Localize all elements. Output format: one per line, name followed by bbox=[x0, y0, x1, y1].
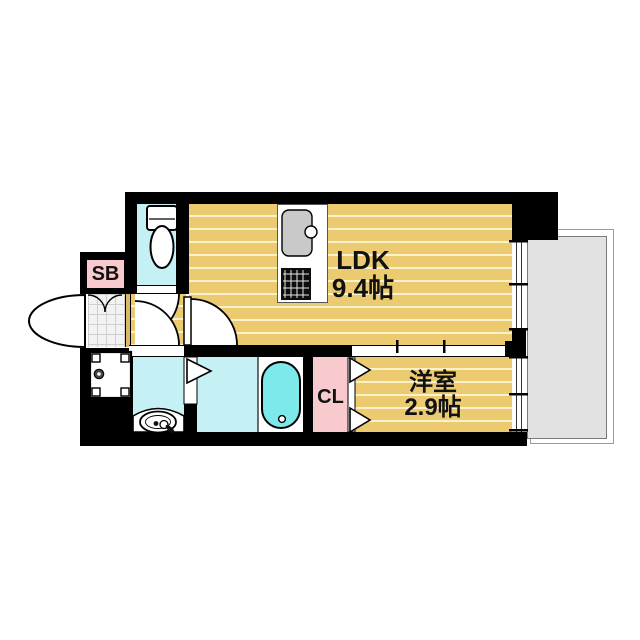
floorplan-canvas: SB bbox=[0, 0, 640, 640]
wall-sliding-stub bbox=[505, 341, 526, 357]
washroom-door-opening bbox=[129, 345, 184, 357]
wall-bottom bbox=[80, 432, 527, 446]
entrance-tiles bbox=[88, 294, 125, 347]
wall-bathdoor-lower bbox=[184, 404, 197, 432]
closet-label: CL bbox=[313, 387, 348, 408]
ldk-label-block: LDK 9.4帖 bbox=[303, 247, 423, 302]
wall-right-upper bbox=[512, 204, 526, 242]
bathtub-platform bbox=[258, 357, 303, 432]
toilet-door-lintel bbox=[137, 285, 176, 294]
sliding-door-icon bbox=[352, 345, 505, 357]
wall-hall-bottom bbox=[184, 345, 352, 357]
western-room-label-block: 洋室 2.9帖 bbox=[366, 370, 500, 421]
balcony bbox=[527, 236, 607, 439]
wall-tub-closet bbox=[303, 357, 313, 432]
ldk-size: 9.4帖 bbox=[303, 275, 423, 303]
wall-toilet-right bbox=[176, 192, 189, 294]
western-room-size: 2.9帖 bbox=[366, 395, 500, 420]
ldk-label: LDK bbox=[303, 247, 423, 275]
toilet-room-floor bbox=[137, 204, 176, 285]
western-room-label: 洋室 bbox=[366, 370, 500, 395]
hall-floor bbox=[131, 294, 186, 345]
shoebox-label: SB bbox=[92, 263, 120, 286]
shoebox-box: SB bbox=[87, 260, 124, 288]
washroom-floor bbox=[133, 357, 184, 432]
entrance-sill bbox=[125, 294, 131, 347]
bathroom-floor bbox=[197, 357, 258, 432]
wall-left-lower-mass bbox=[80, 348, 133, 432]
